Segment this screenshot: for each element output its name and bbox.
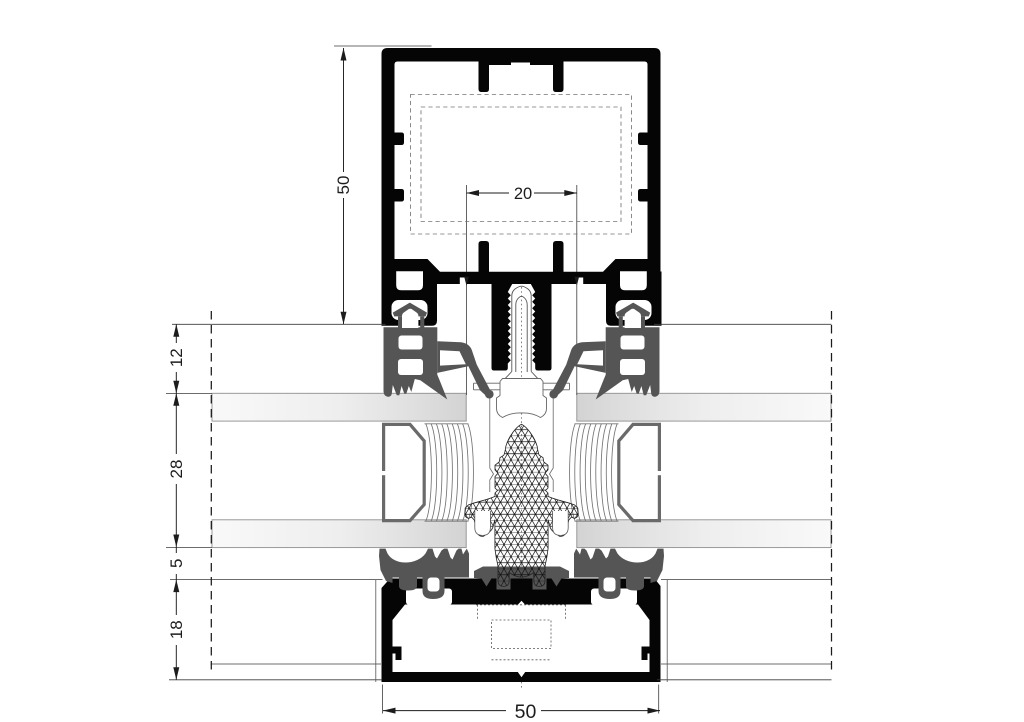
svg-text:28: 28	[167, 460, 186, 479]
svg-text:50: 50	[515, 701, 537, 722]
svg-text:20: 20	[514, 185, 532, 203]
svg-text:18: 18	[167, 620, 186, 639]
svg-text:5: 5	[167, 559, 186, 568]
svg-text:50: 50	[334, 176, 353, 195]
svg-text:12: 12	[167, 348, 186, 367]
